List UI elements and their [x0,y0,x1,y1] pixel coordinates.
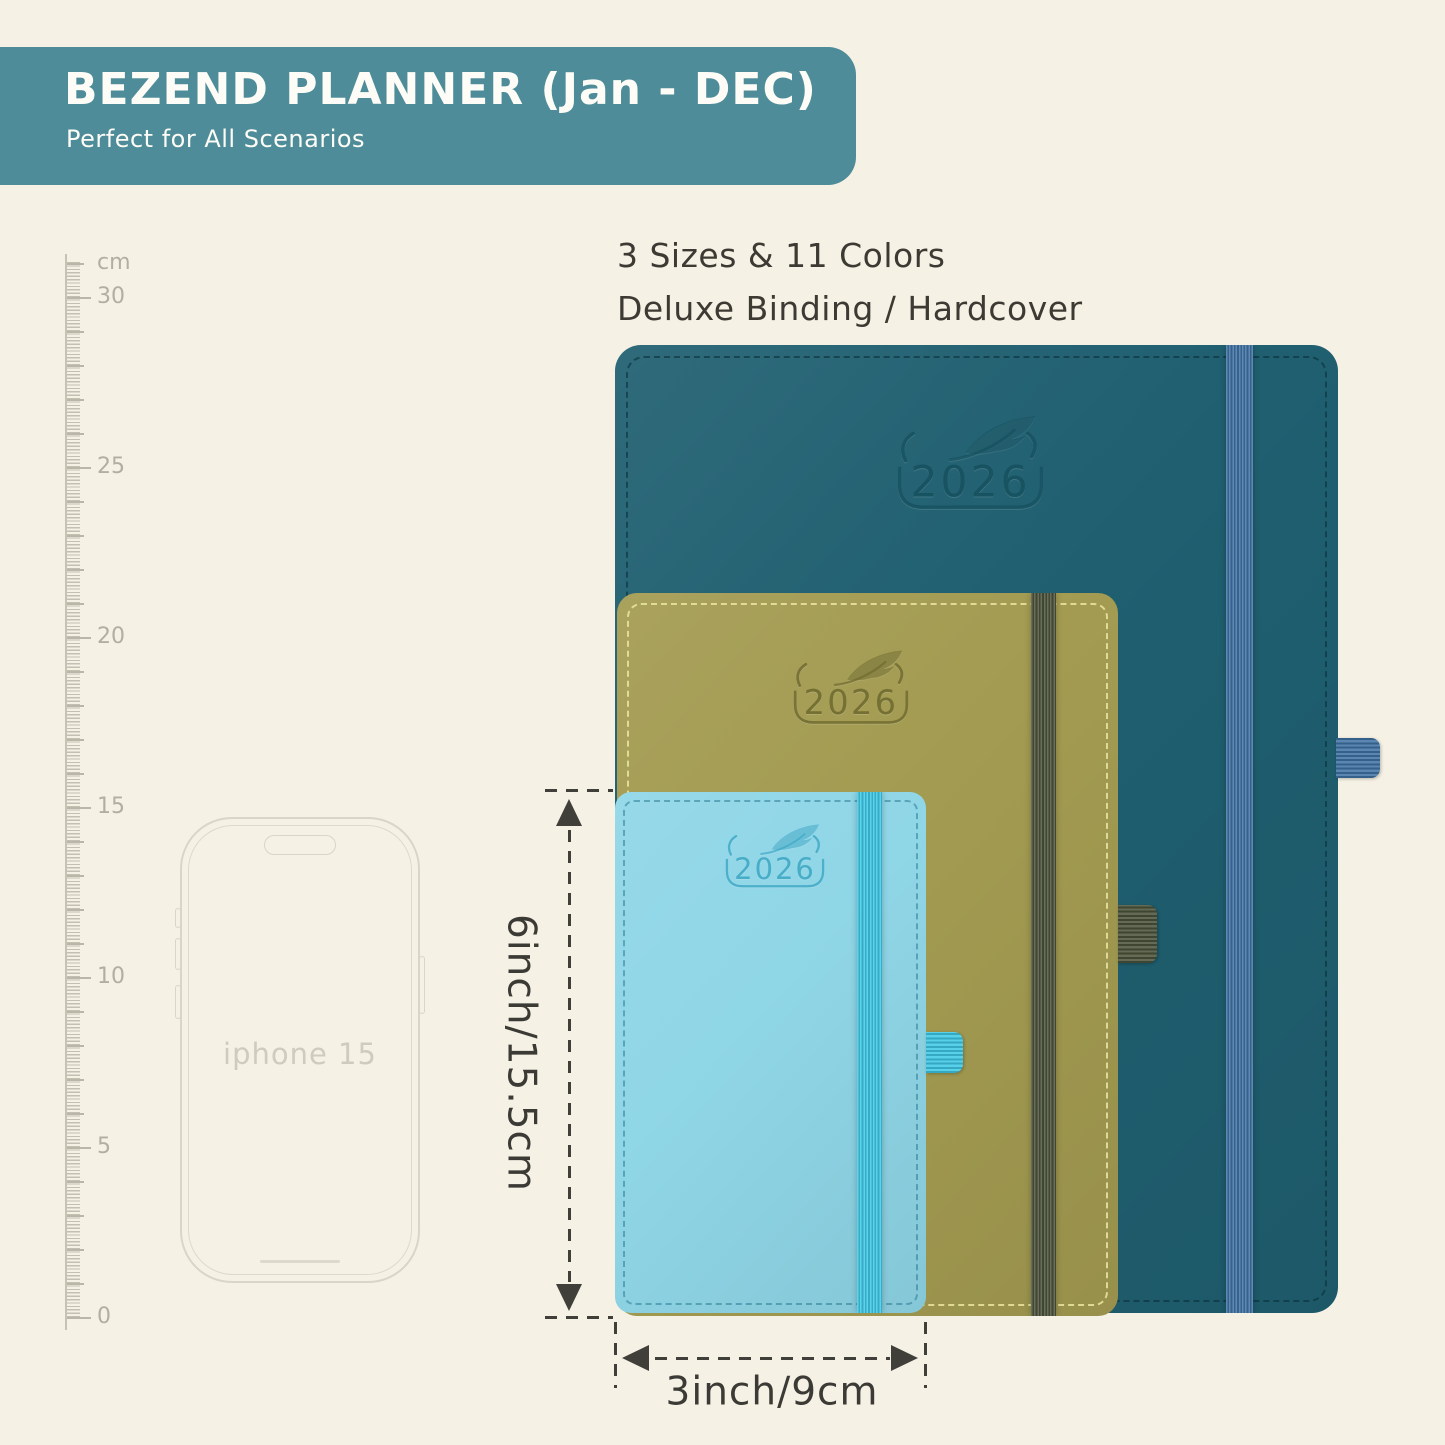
ruler-major-tick [67,977,91,979]
iphone-label: iphone 15 [182,1037,418,1071]
ruler-major-tick [67,297,91,299]
iphone-outline: iphone 15 [180,817,420,1283]
ruler-minor-tick [67,1079,84,1081]
ruler-minor-tick [67,909,84,911]
embossed-2026-logo-medium: 2026 [786,649,916,735]
intro-line-binding: Deluxe Binding / Hardcover [617,283,1083,336]
power-button [419,956,425,1014]
ruler-minor-tick [67,739,84,741]
dim-line-horizontal [655,1357,890,1360]
mute-button [175,908,181,928]
ruler-label: 10 [97,964,125,989]
ruler-major-tick [67,1147,91,1149]
pen-loop-large [1336,738,1380,778]
ruler-minor-tick [67,569,84,571]
ruler-minor-tick [67,433,84,435]
iphone-bottom-port [260,1260,340,1263]
ruler-major-tick [67,637,91,639]
arrow-right-icon [891,1345,918,1371]
product-image-canvas: BEZEND PLANNER (Jan - DEC) Perfect for A… [0,0,1445,1445]
ruler-label: 20 [97,624,125,649]
ruler-major-tick [67,467,91,469]
ruler-unit-label: cm [97,250,131,275]
ruler-minor-tick [67,365,84,367]
ruler-minor-tick [67,1113,84,1115]
width-dimension-label: 3inch/9cm [666,1370,879,1415]
ruler-minor-tick [67,263,84,265]
header-banner: BEZEND PLANNER (Jan - DEC) Perfect for A… [0,47,856,185]
ruler-minor-tick [67,1283,84,1285]
ruler-minor-tick [67,671,84,673]
arrow-up-icon [556,799,582,826]
ruler-major-tick [67,1317,91,1319]
ruler-minor-tick [67,331,84,333]
dim-tick-top [545,789,613,792]
intro-text: 3 Sizes & 11 Colors Deluxe Binding / Har… [617,230,1083,336]
ruler-label: 0 [97,1304,111,1329]
arrow-left-icon [622,1345,649,1371]
dim-tick-left [614,1322,617,1388]
ruler-minor-tick [67,399,84,401]
page-subtitle: Perfect for All Scenarios [66,125,856,153]
feather-icon [966,416,1036,454]
elastic-band [857,792,882,1313]
feather-icon [772,824,819,850]
ruler-major-tick [67,807,91,809]
feather-icon [847,651,902,681]
ruler-label: 15 [97,794,125,819]
elastic-band [1031,593,1056,1316]
dim-tick-right [924,1322,927,1388]
arrow-down-icon [556,1284,582,1311]
ruler-minor-tick [67,841,84,843]
volume-down-button [175,985,181,1019]
year-text: 2026 [910,457,1030,507]
pen-loop-medium [1118,905,1157,963]
ruler-minor-tick [67,943,84,945]
page-title: BEZEND PLANNER (Jan - DEC) [64,65,856,116]
ruler-minor-tick [67,1045,84,1047]
pen-loop-small [926,1032,963,1073]
dim-line-vertical [568,830,571,1282]
ruler-minor-tick [67,1181,84,1183]
intro-line-sizes: 3 Sizes & 11 Colors [617,230,1083,283]
ruler-minor-tick [67,1011,84,1013]
ruler-label: 5 [97,1134,111,1159]
ruler-minor-tick [67,1249,84,1251]
height-dimension-label: 6inch/15.5cm [499,914,544,1192]
volume-up-button [175,938,181,970]
embossed-2026-logo-small: 2026 [719,823,831,897]
ruler-minor-tick [67,773,84,775]
dim-tick-bottom [545,1316,613,1319]
ruler-minor-tick [67,535,84,537]
year-text: 2026 [804,683,899,722]
ruler-minor-tick [67,501,84,503]
ruler-minor-tick [67,1215,84,1217]
ruler-label: 30 [97,284,125,309]
embossed-2026-logo-large: 2026 [888,414,1053,523]
elastic-band [1226,345,1253,1313]
ruler-minor-tick [67,875,84,877]
ruler-minor-tick [67,705,84,707]
year-text: 2026 [734,852,816,886]
ruler-label: 25 [97,454,125,479]
ruler-minor-tick [67,603,84,605]
ruler-mm-ticks [67,262,80,1319]
dynamic-island [264,835,336,855]
